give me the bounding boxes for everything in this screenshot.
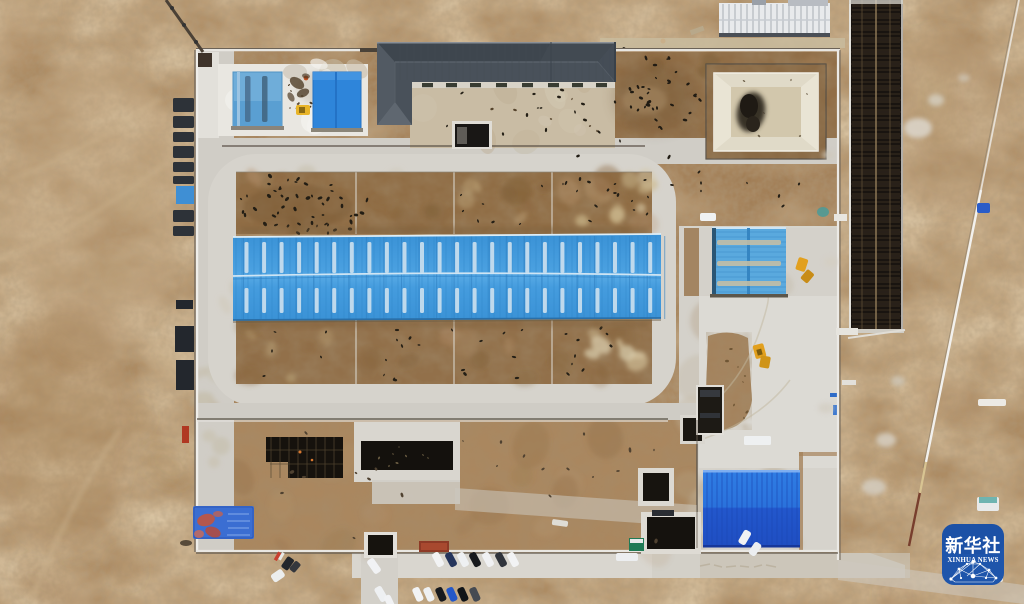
svg-text:新华社: 新华社 — [945, 535, 1001, 556]
